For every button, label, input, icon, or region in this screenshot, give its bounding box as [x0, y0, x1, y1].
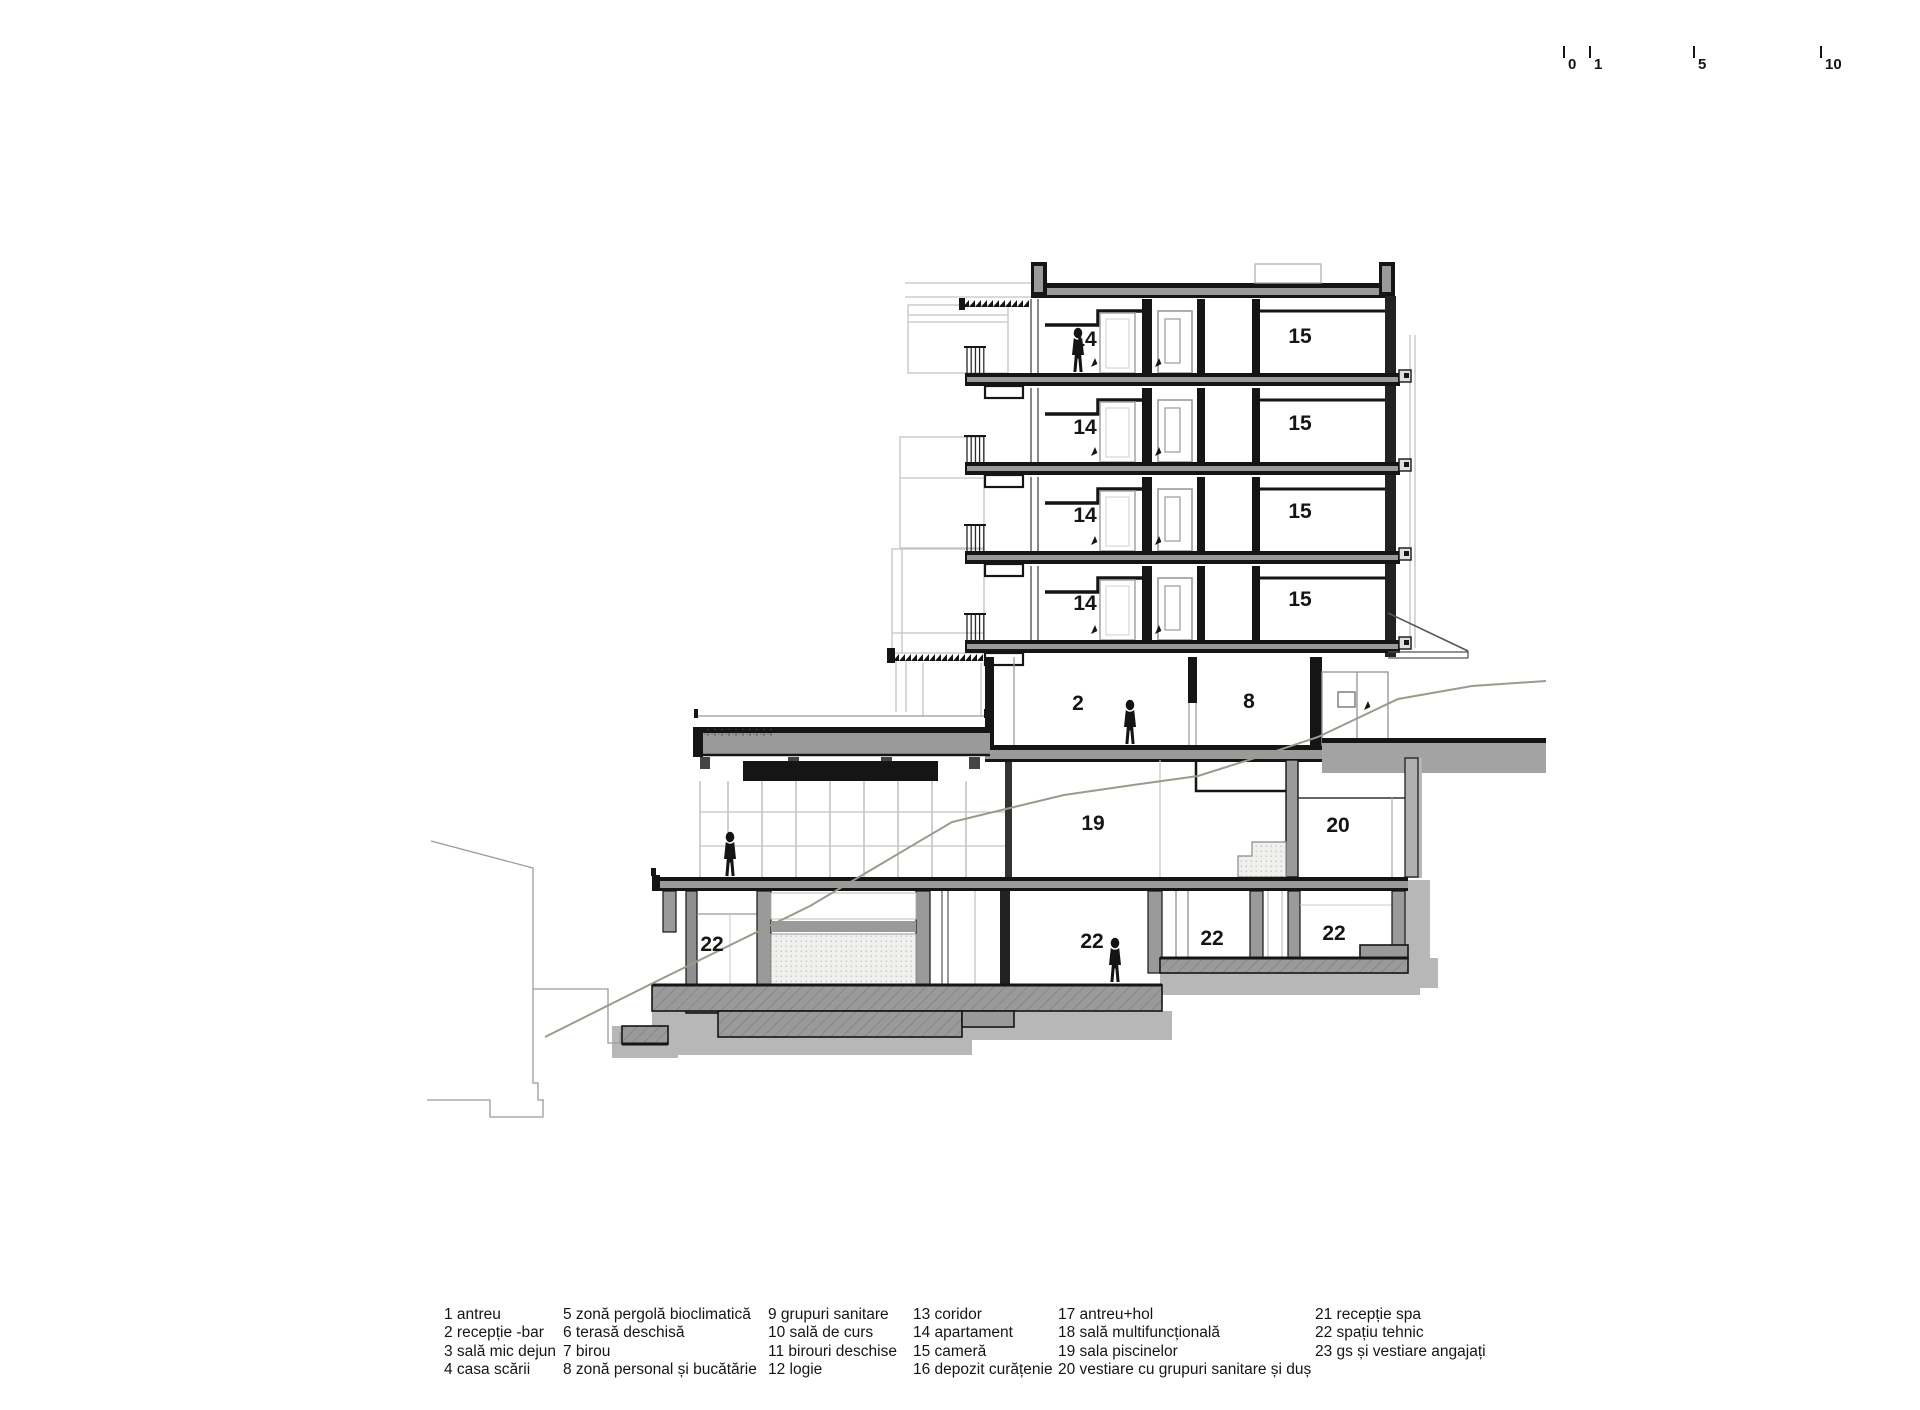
- zigzag-awning-top: [963, 300, 1029, 307]
- curtain-wall: [700, 781, 1008, 877]
- legend-item: 10 sală de curs: [768, 1324, 897, 1342]
- legend-item: 15 cameră: [913, 1343, 1053, 1361]
- room-label: 22: [1322, 922, 1345, 945]
- legend-item: 17 antreu+hol: [1058, 1306, 1311, 1324]
- room-label: 22: [1080, 930, 1103, 953]
- legend-item: 3 sală mic dejun: [444, 1343, 556, 1361]
- roof-outline-beyond: [1255, 264, 1321, 283]
- room-label: 22: [1200, 927, 1223, 950]
- room-label: 22: [700, 933, 723, 956]
- terrain-step-lines: [427, 841, 668, 1117]
- legend-item: 6 terasă deschisă: [563, 1324, 757, 1342]
- scale-tick: [1693, 46, 1695, 58]
- legend-item: 8 zonă personal și bucătărie: [563, 1361, 757, 1379]
- legend-column: 13 coridor14 apartament15 cameră16 depoz…: [913, 1306, 1053, 1380]
- legend-item: 9 grupuri sanitare: [768, 1306, 897, 1324]
- zigzag-pergola: [893, 654, 983, 661]
- legend-column: 9 grupuri sanitare10 sală de curs11 biro…: [768, 1306, 897, 1380]
- room-label: 15: [1288, 325, 1312, 348]
- scale-number: 0: [1568, 56, 1576, 73]
- legend-item: 13 coridor: [913, 1306, 1053, 1324]
- legend-item: 12 logie: [768, 1361, 897, 1379]
- room-label: 19: [1081, 812, 1104, 835]
- legend-item: 5 zonă pergolă bioclimatică: [563, 1306, 757, 1324]
- room-label: 2: [1072, 692, 1084, 715]
- legend-item: 23 gs și vestiare angajați: [1315, 1343, 1486, 1361]
- pool-basin: [771, 934, 916, 985]
- legend-item: 11 birouri deschise: [768, 1343, 897, 1361]
- lower-block: [651, 709, 1418, 891]
- legend: 1 antreu2 recepție -bar3 sală mic dejun4…: [0, 1306, 1920, 1396]
- legend-item: 18 sală multifuncțională: [1058, 1324, 1311, 1342]
- legend-item: 20 vestiare cu grupuri sanitare și duș: [1058, 1361, 1311, 1379]
- room-label: 8: [1243, 690, 1255, 713]
- scale-tick: [1820, 46, 1822, 58]
- scale-number: 10: [1825, 56, 1842, 73]
- room-label: 15: [1288, 412, 1312, 435]
- legend-item: 22 spațiu tehnic: [1315, 1324, 1486, 1342]
- scale-number: 5: [1698, 56, 1706, 73]
- room-label: 14: [1073, 328, 1097, 351]
- legend-item: 2 recepție -bar: [444, 1324, 556, 1342]
- legend-item: 4 casa scării: [444, 1361, 556, 1379]
- scale-tick: [1563, 46, 1565, 58]
- scale-tick: [1589, 46, 1591, 58]
- room-label: 14: [1073, 592, 1097, 615]
- legend-column: 5 zonă pergolă bioclimatică6 terasă desc…: [563, 1306, 757, 1380]
- legend-item: 14 apartament: [913, 1324, 1053, 1342]
- scale-number: 1: [1594, 56, 1602, 73]
- section-drawing: 141514151415141528192022222222: [0, 0, 1920, 1410]
- legend-column: 17 antreu+hol18 sală multifuncțională19 …: [1058, 1306, 1311, 1380]
- ground-right: [1322, 738, 1546, 878]
- room-label: 15: [1288, 500, 1312, 523]
- legend-item: 7 birou: [563, 1343, 757, 1361]
- room-label: 14: [1073, 416, 1097, 439]
- legend-item: 19 sala piscinelor: [1058, 1343, 1311, 1361]
- pool-steps: [1238, 842, 1286, 877]
- architectural-section-sheet: 141514151415141528192022222222 01510 1 a…: [0, 0, 1920, 1410]
- legend-item: 16 depozit curățenie: [913, 1361, 1053, 1379]
- room-label: 20: [1326, 814, 1349, 837]
- room-label: 14: [1073, 504, 1097, 527]
- legend-column: 1 antreu2 recepție -bar3 sală mic dejun4…: [444, 1306, 556, 1380]
- room-label: 15: [1288, 588, 1312, 611]
- roof-gravel-hatch: [702, 729, 774, 738]
- legend-item: 21 recepție spa: [1315, 1306, 1486, 1324]
- legend-column: 21 recepție spa22 spațiu tehnic23 gs și …: [1315, 1306, 1486, 1361]
- scale-bar: 01510: [0, 0, 1920, 90]
- legend-item: 1 antreu: [444, 1306, 556, 1324]
